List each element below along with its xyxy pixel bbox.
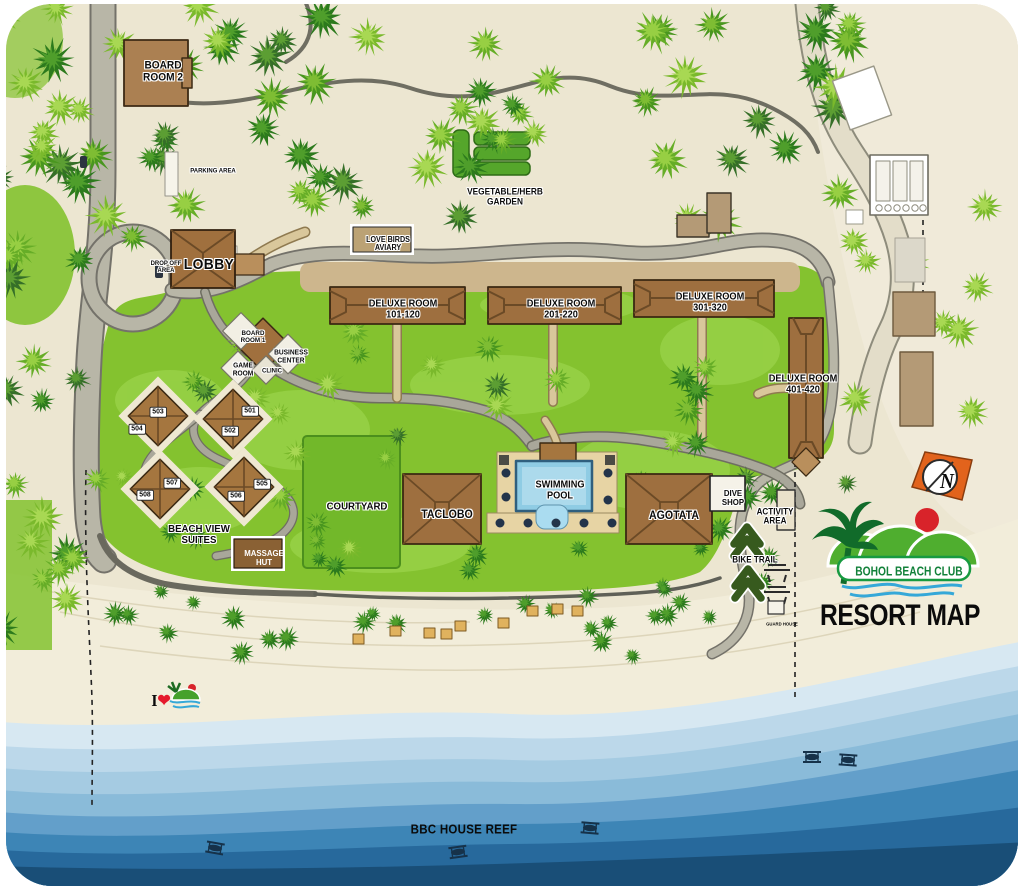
massage-hut-sign	[231, 536, 285, 571]
deluxe-room-201-220-building	[488, 287, 621, 324]
map-artwork	[6, 4, 1018, 886]
car-icon	[155, 264, 163, 278]
swimming-pool-complex	[487, 443, 619, 533]
resort-map-page: BOARDROOM 2 PARKING AREA DROP OFFAREA LO…	[0, 0, 1024, 890]
taclobo-building	[403, 474, 481, 544]
board-room-2-building	[124, 40, 192, 106]
deluxe-room-301-320-building	[634, 280, 774, 317]
deluxe-room-101-120-building	[330, 287, 465, 324]
parking-structure	[165, 152, 178, 196]
guard-house-hut	[768, 601, 784, 614]
dive-shop-sign	[710, 476, 745, 511]
agotata-building	[626, 474, 712, 544]
resort-map-canvas: BOARDROOM 2 PARKING AREA DROP OFFAREA LO…	[6, 4, 1018, 886]
love-birds-aviary-sign	[350, 224, 414, 255]
car-icon	[80, 156, 87, 168]
activity-area-sign	[777, 490, 795, 530]
logo-name-band	[838, 557, 970, 580]
deluxe-room-401-420-building	[789, 318, 823, 476]
